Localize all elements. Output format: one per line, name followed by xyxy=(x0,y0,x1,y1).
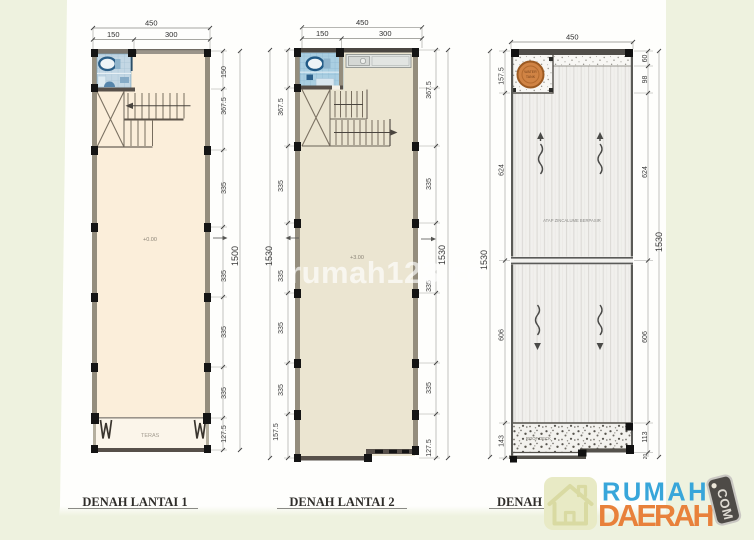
svg-text:150: 150 xyxy=(107,30,120,39)
svg-text:450: 450 xyxy=(566,33,579,42)
svg-text:300: 300 xyxy=(379,29,392,38)
svg-text:624: 624 xyxy=(642,166,649,178)
svg-text:127.5: 127.5 xyxy=(426,439,433,457)
svg-text:143: 143 xyxy=(499,435,506,447)
svg-text:1500: 1500 xyxy=(230,246,240,266)
svg-text:WATER: WATER xyxy=(524,70,537,74)
svg-text:TERAS: TERAS xyxy=(141,433,160,439)
svg-text:TANK: TANK xyxy=(526,75,536,79)
svg-text:150: 150 xyxy=(221,66,228,78)
svg-text:450: 450 xyxy=(356,18,369,27)
svg-text:150: 150 xyxy=(316,29,329,38)
svg-text:335: 335 xyxy=(221,182,228,194)
svg-text:60: 60 xyxy=(642,55,649,63)
svg-text:367.5: 367.5 xyxy=(221,97,228,115)
svg-text:127.5: 127.5 xyxy=(221,425,228,443)
svg-text:ATAP ZINCALUME BERPASIR: ATAP ZINCALUME BERPASIR xyxy=(543,218,601,223)
svg-text:335: 335 xyxy=(221,326,228,338)
svg-text:606: 606 xyxy=(642,331,649,343)
svg-text:1530: 1530 xyxy=(654,232,664,252)
svg-text:335: 335 xyxy=(221,270,228,282)
svg-text:606: 606 xyxy=(499,329,506,341)
svg-text:DENAH LANTAI 1: DENAH LANTAI 1 xyxy=(82,495,187,509)
svg-text:300: 300 xyxy=(165,30,178,39)
svg-text:624: 624 xyxy=(499,164,506,176)
svg-text:ROOF DECK: ROOF DECK xyxy=(526,436,551,441)
svg-text:335: 335 xyxy=(278,384,285,396)
svg-text:335: 335 xyxy=(426,382,433,394)
svg-text:335: 335 xyxy=(278,322,285,334)
svg-text:113: 113 xyxy=(642,431,649,442)
svg-text:157.5: 157.5 xyxy=(273,423,280,441)
svg-text:335: 335 xyxy=(278,270,285,282)
svg-text:+0.00: +0.00 xyxy=(143,237,157,243)
svg-text:367.5: 367.5 xyxy=(426,81,433,99)
svg-text:335: 335 xyxy=(278,180,285,192)
svg-text:450: 450 xyxy=(145,19,158,28)
svg-text:335: 335 xyxy=(221,387,228,399)
svg-text:DAERAH: DAERAH xyxy=(598,499,712,533)
svg-text:20: 20 xyxy=(643,454,649,460)
svg-text:1530: 1530 xyxy=(264,246,274,266)
svg-text:rumah123.co: rumah123.co xyxy=(289,255,486,290)
svg-text:157.5: 157.5 xyxy=(499,67,506,85)
svg-text:335: 335 xyxy=(426,178,433,190)
svg-text:367.5: 367.5 xyxy=(278,98,285,116)
svg-text:98: 98 xyxy=(642,76,649,84)
svg-text:DENAH LANTAI 2: DENAH LANTAI 2 xyxy=(289,495,394,509)
